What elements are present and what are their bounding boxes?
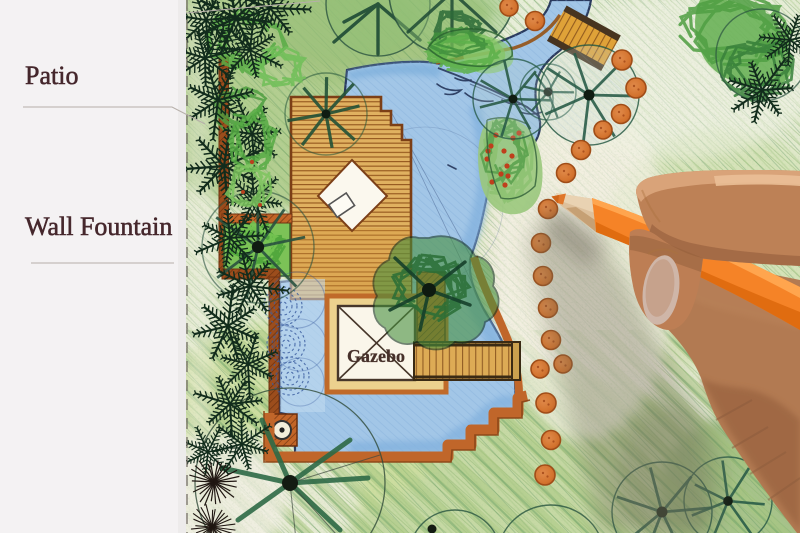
svg-text:Wall Fountain: Wall Fountain <box>25 212 172 241</box>
svg-text:Patio: Patio <box>25 61 78 90</box>
svg-text:Gazebo: Gazebo <box>347 346 405 366</box>
